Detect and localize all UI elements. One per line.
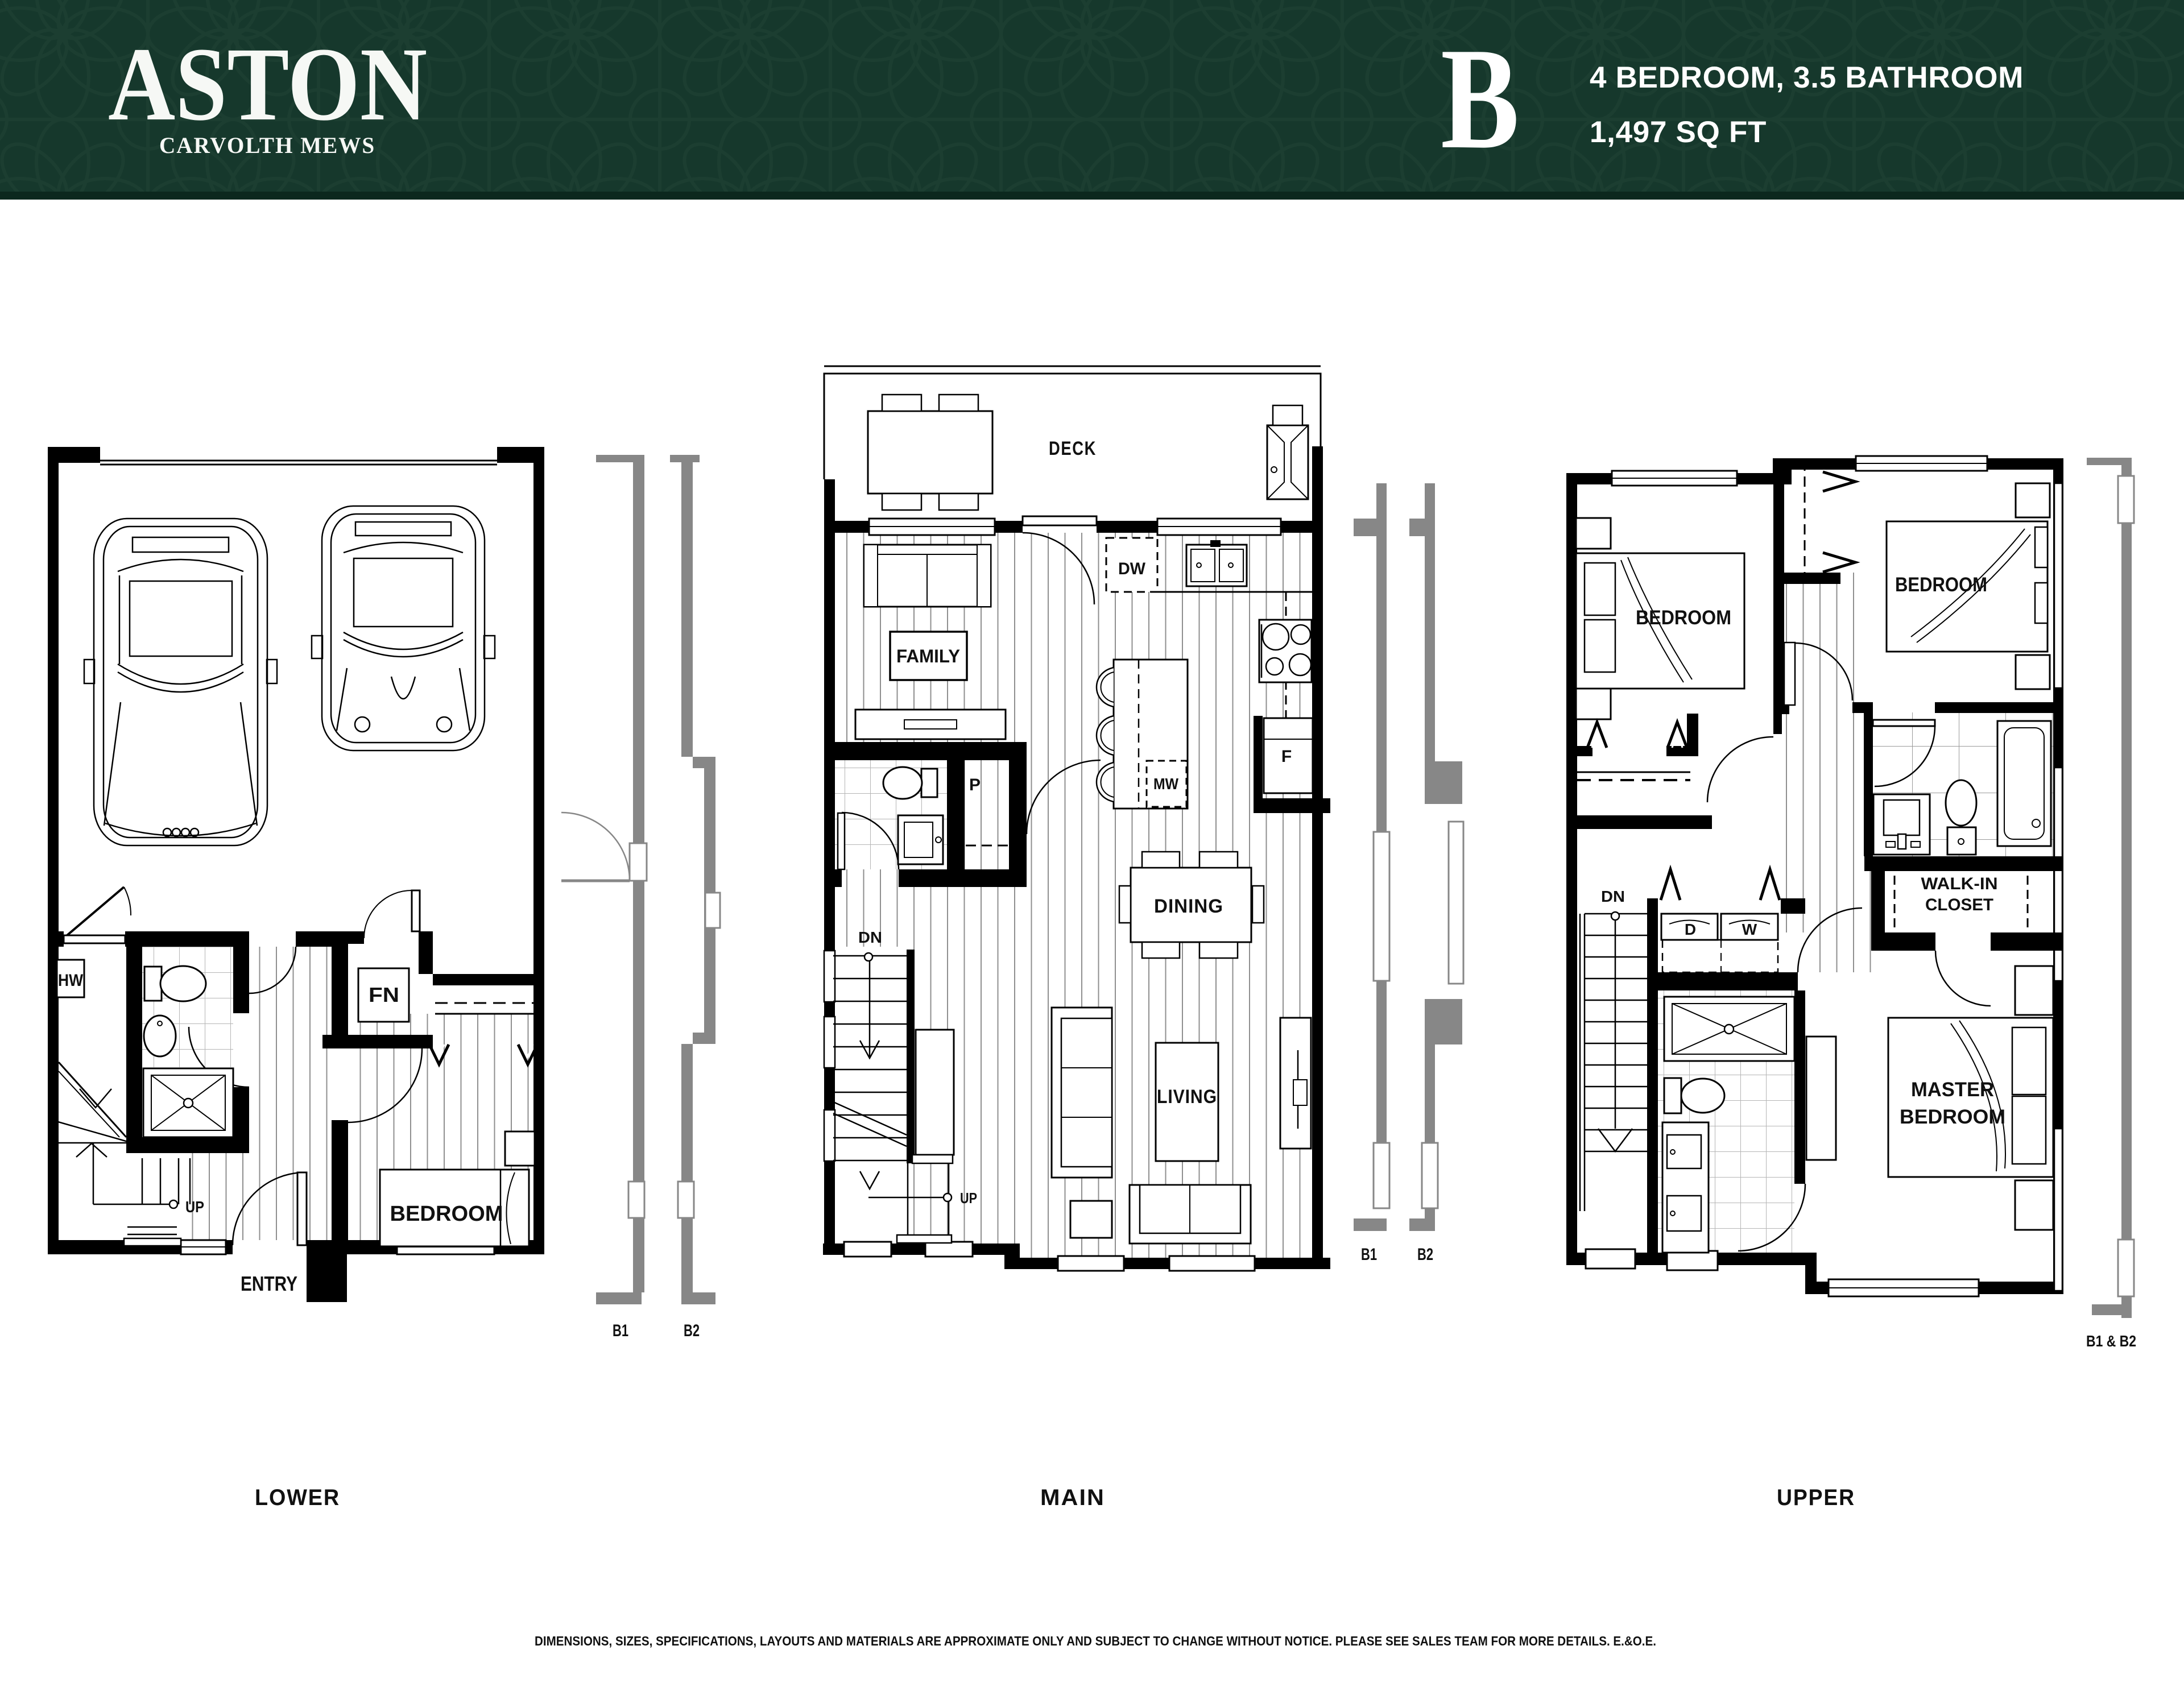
svg-text:MASTER: MASTER (1911, 1079, 1994, 1101)
svg-text:P: P (969, 776, 981, 794)
svg-text:MW: MW (1153, 775, 1178, 793)
svg-text:ENTRY: ENTRY (241, 1272, 297, 1295)
svg-text:HW: HW (58, 971, 84, 990)
svg-text:DW: DW (1118, 559, 1146, 578)
svg-text:DN: DN (858, 929, 882, 946)
svg-text:BEDROOM: BEDROOM (1900, 1106, 2005, 1128)
svg-text:BEDROOM: BEDROOM (1636, 607, 1731, 629)
svg-text:DINING: DINING (1154, 896, 1223, 917)
svg-text:BEDROOM: BEDROOM (390, 1202, 503, 1226)
svg-text:DN: DN (1601, 888, 1625, 905)
svg-text:W: W (1742, 921, 1757, 938)
svg-text:DECK: DECK (1049, 438, 1097, 459)
svg-text:F: F (1281, 747, 1292, 766)
svg-text:WALK-IN: WALK-IN (1921, 874, 1998, 893)
svg-text:BEDROOM: BEDROOM (1895, 574, 1987, 596)
svg-text:B1: B1 (1361, 1245, 1377, 1264)
svg-text:CLOSET: CLOSET (1925, 896, 1993, 914)
svg-text:FN: FN (369, 983, 399, 1006)
svg-text:FAMILY: FAMILY (896, 646, 960, 666)
svg-text:LIVING: LIVING (1157, 1086, 1217, 1108)
svg-text:UP: UP (185, 1198, 204, 1216)
svg-text:B1: B1 (613, 1321, 628, 1340)
svg-text:UP: UP (960, 1189, 977, 1207)
svg-text:MAIN: MAIN (1040, 1485, 1105, 1510)
svg-text:B2: B2 (1417, 1245, 1433, 1264)
svg-text:B2: B2 (684, 1321, 700, 1340)
svg-text:B1 & B2: B1 & B2 (2086, 1332, 2136, 1350)
svg-text:UPPER: UPPER (1777, 1485, 1855, 1510)
svg-text:LOWER: LOWER (255, 1485, 340, 1510)
svg-text:D: D (1685, 921, 1696, 938)
svg-text:DIMENSIONS, SIZES, SPECIFICATI: DIMENSIONS, SIZES, SPECIFICATIONS, LAYOU… (535, 1634, 1656, 1648)
